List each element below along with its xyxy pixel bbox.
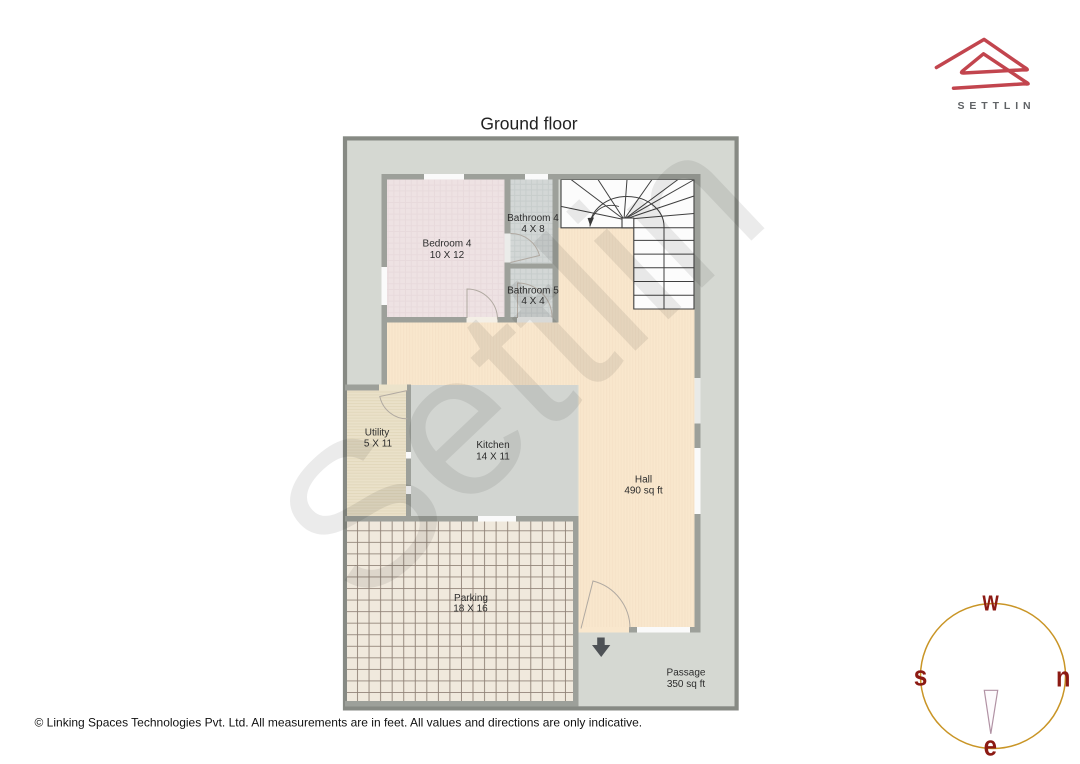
svg-text:5 X 11: 5 X 11 — [364, 439, 393, 450]
svg-text:w: w — [982, 586, 999, 618]
svg-text:Passage: Passage — [667, 668, 706, 679]
svg-text:e: e — [984, 731, 997, 763]
svg-text:s: s — [914, 660, 928, 692]
svg-text:n: n — [1056, 661, 1070, 693]
svg-text:Kitchen: Kitchen — [476, 440, 509, 451]
svg-text:10 X 12: 10 X 12 — [430, 250, 465, 261]
svg-text:Bathroom 5: Bathroom 5 — [507, 286, 559, 297]
svg-text:18 X 16: 18 X 16 — [453, 604, 488, 615]
svg-text:Utility: Utility — [365, 428, 389, 439]
svg-text:Hall: Hall — [635, 475, 652, 486]
svg-text:4 X 8: 4 X 8 — [521, 224, 545, 235]
svg-text:© Linking Spaces Technologies: © Linking Spaces Technologies Pvt. Ltd. … — [35, 716, 643, 730]
svg-text:14 X 11: 14 X 11 — [476, 452, 510, 463]
svg-text:Ground floor: Ground floor — [480, 114, 577, 134]
svg-text:Bedroom 4: Bedroom 4 — [423, 239, 472, 250]
svg-text:Parking: Parking — [454, 593, 488, 604]
svg-text:490 sq ft: 490 sq ft — [624, 486, 663, 497]
svg-text:350 sq ft: 350 sq ft — [667, 679, 706, 690]
svg-text:Bathroom 4: Bathroom 4 — [507, 213, 559, 224]
svg-text:SETTLIN: SETTLIN — [957, 100, 1035, 112]
svg-text:4 X 4: 4 X 4 — [521, 296, 545, 307]
